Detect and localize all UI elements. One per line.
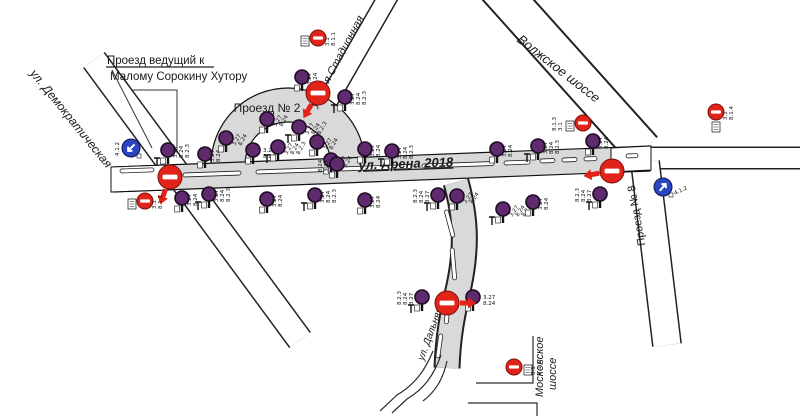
sign-code-label: 8.2.3 <box>555 140 561 154</box>
no-stopping-icon <box>330 157 344 171</box>
sign-plate <box>490 157 495 163</box>
no-stopping-icon <box>496 202 510 216</box>
labels-layer: Проезд ведущий к Малому Сорокину Хутору … <box>27 14 649 397</box>
sign-plate <box>260 207 265 213</box>
note-label-line1: Проезд ведущий к <box>107 55 205 67</box>
sign-code-label: 8.2.3 <box>226 188 232 202</box>
no-stopping-icon <box>415 290 429 304</box>
sign-plate <box>292 135 297 141</box>
sign-no-entry-3.1: 3.18.1.1 <box>506 359 543 375</box>
sign-no-stopping-3.27: 3.278.248.2.3 <box>575 187 607 210</box>
sign-code-label: 8.24 <box>376 195 382 208</box>
sign-code-label: 8.24 <box>419 190 425 203</box>
sign-plate <box>198 162 203 168</box>
sign-code-label: 8.1.3 <box>552 117 558 131</box>
sign-code-label: 8.24 <box>278 194 284 207</box>
sign-code-label: 8.1.1 <box>331 32 337 46</box>
road-moskovskoe-outline <box>476 336 533 383</box>
plate-8.2.3-icon <box>285 135 291 143</box>
no-stopping-icon <box>292 120 306 134</box>
no-stopping-icon <box>450 189 464 203</box>
lane-marking <box>584 157 597 161</box>
sign-plate <box>496 217 501 223</box>
sign-code-label: 8.24 <box>318 159 324 172</box>
sign-plate <box>310 150 315 156</box>
sign-plate <box>330 172 335 178</box>
sign-code-label: 8.2.3 <box>296 140 308 156</box>
sign-plate <box>338 105 343 111</box>
sign-no-entry-3.1: 3.18.1.4 <box>708 104 735 132</box>
sign-code-label: 3.27 <box>409 292 415 305</box>
sign-plate <box>271 155 276 161</box>
no-stopping-icon <box>593 187 607 201</box>
lane-marking <box>504 160 530 165</box>
no-stopping-icon <box>431 188 445 202</box>
sign-code-label: 8.2.3 <box>409 145 415 159</box>
sign-code-label: 8.1.1 <box>537 361 543 375</box>
sign-plate <box>593 202 598 208</box>
sign-mandatory-4.1.2: 4.1.2 <box>115 139 141 158</box>
sign-code-label: 8.24 <box>403 292 409 305</box>
lane-marking <box>562 157 577 162</box>
sign-code-label: 3.27 <box>324 159 330 172</box>
sign-no-stopping-3.27: 3.278.24 <box>260 192 285 213</box>
no-stopping-icon <box>271 140 285 154</box>
sign-plate <box>308 203 313 209</box>
sign-code-label: 8.24 <box>604 136 610 149</box>
sign-code-label: 8.2.3 <box>413 189 419 203</box>
sign-plate <box>295 85 300 91</box>
sign-plate <box>431 203 436 209</box>
no-stopping-icon <box>260 112 274 126</box>
sign-plate <box>358 157 363 163</box>
sign-code-label: 8.1.4 <box>729 106 735 120</box>
sign-code-label: 3.1 <box>558 122 564 131</box>
sign-code-label: 8.2.3 <box>397 291 403 305</box>
sign-no-entry-3.1: 3.18.1.1 <box>128 193 164 209</box>
sign-plate <box>531 154 536 160</box>
plate-8.2.3-icon <box>301 203 307 211</box>
sign-no-stopping-3.27: 3.278.248.2.3 <box>301 188 338 211</box>
sign-code-label: 8.2.3 <box>362 91 368 105</box>
slip-curve <box>392 355 441 413</box>
sign-code-label: 8.2.3 <box>185 144 191 158</box>
sign-code-label: 8.2.3 <box>332 189 338 203</box>
sign-code-label: 3.27 <box>587 189 593 202</box>
sign-code-label: 8.24 <box>483 301 496 307</box>
sign-code-label: 8.1.1 <box>158 195 164 209</box>
sign-no-entry-3.1: 3.18.1.1 <box>301 30 337 46</box>
sign-code-label: 8.2.3 <box>575 188 581 202</box>
sign-code-label: 8.24 <box>508 144 514 157</box>
sign-plate <box>358 208 363 214</box>
sign-no-stopping-3.27: 3.278.248.2.3 <box>413 188 445 211</box>
sign-plate <box>202 202 207 208</box>
lane-marking <box>540 158 555 163</box>
no-stopping-icon <box>310 135 324 149</box>
plate-8.2.3-icon <box>586 202 592 210</box>
sign-code-label: 8.24 <box>581 189 587 202</box>
sign-no-entry-3.1: 3.18.1.3 <box>552 115 591 131</box>
sign-code-label: 4.1.2 <box>115 142 121 156</box>
sign-mandatory-4.1.2: 4.1.2 <box>654 178 689 197</box>
sign-no-stopping-3.27: 3.278.248.2.3 <box>397 290 429 313</box>
note-label-line2: Малому Сорокину Хутору <box>110 71 248 83</box>
lane-marking <box>626 154 638 158</box>
no-stopping-icon <box>246 143 260 157</box>
sign-code-label: 8.24 <box>376 144 382 157</box>
sign-plate <box>586 149 591 155</box>
street-label-moskovskoe-2: шоссе <box>547 358 559 390</box>
sign-plate <box>175 206 180 212</box>
scheme-page: Проезд ведущий к Малому Сорокину Хутору … <box>0 0 800 416</box>
sign-plate <box>526 210 531 216</box>
sign-plate <box>219 146 224 152</box>
plate-8.2.3-icon <box>424 203 430 211</box>
lane-marking <box>120 168 154 173</box>
sign-code-label: 8.24 <box>544 197 550 210</box>
sign-code-label: 3.27 <box>425 190 431 203</box>
sign-no-stopping-3.27: 3.278.24 <box>526 195 551 216</box>
sign-no-stopping-3.27: 3.278.24 <box>358 193 383 214</box>
sign-plate <box>260 127 265 133</box>
sign-plate <box>161 158 166 164</box>
sign-plate <box>450 204 455 210</box>
sign-plate <box>246 158 251 164</box>
sign-plate <box>385 159 390 165</box>
plate-8.2.3-icon <box>408 305 414 313</box>
plate-8.2.3-icon <box>489 217 495 225</box>
sign-plate <box>415 305 420 311</box>
road-moskovskoe-outline <box>468 403 537 416</box>
scheme-svg: Проезд ведущий к Малому Сорокину Хутору … <box>0 0 800 416</box>
sign-code-label: 4.1.2 <box>673 185 688 196</box>
no-stopping-icon <box>219 131 233 145</box>
